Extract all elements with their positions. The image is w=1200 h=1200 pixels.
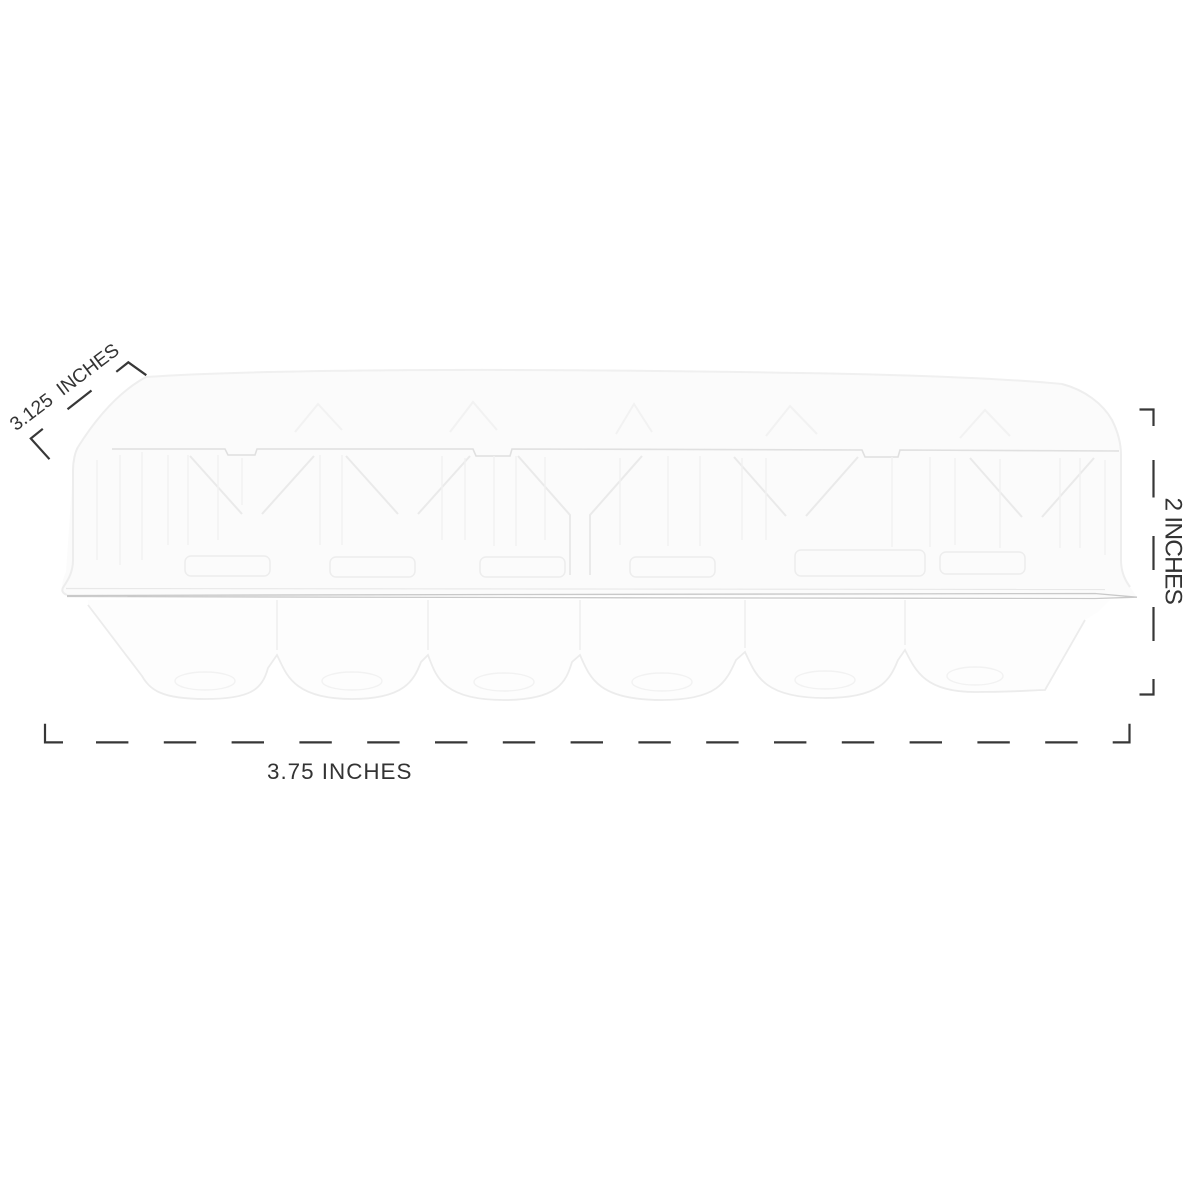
svg-text:3.75 INCHES: 3.75 INCHES — [267, 759, 412, 784]
svg-text:2 INCHES: 2 INCHES — [1160, 498, 1187, 605]
